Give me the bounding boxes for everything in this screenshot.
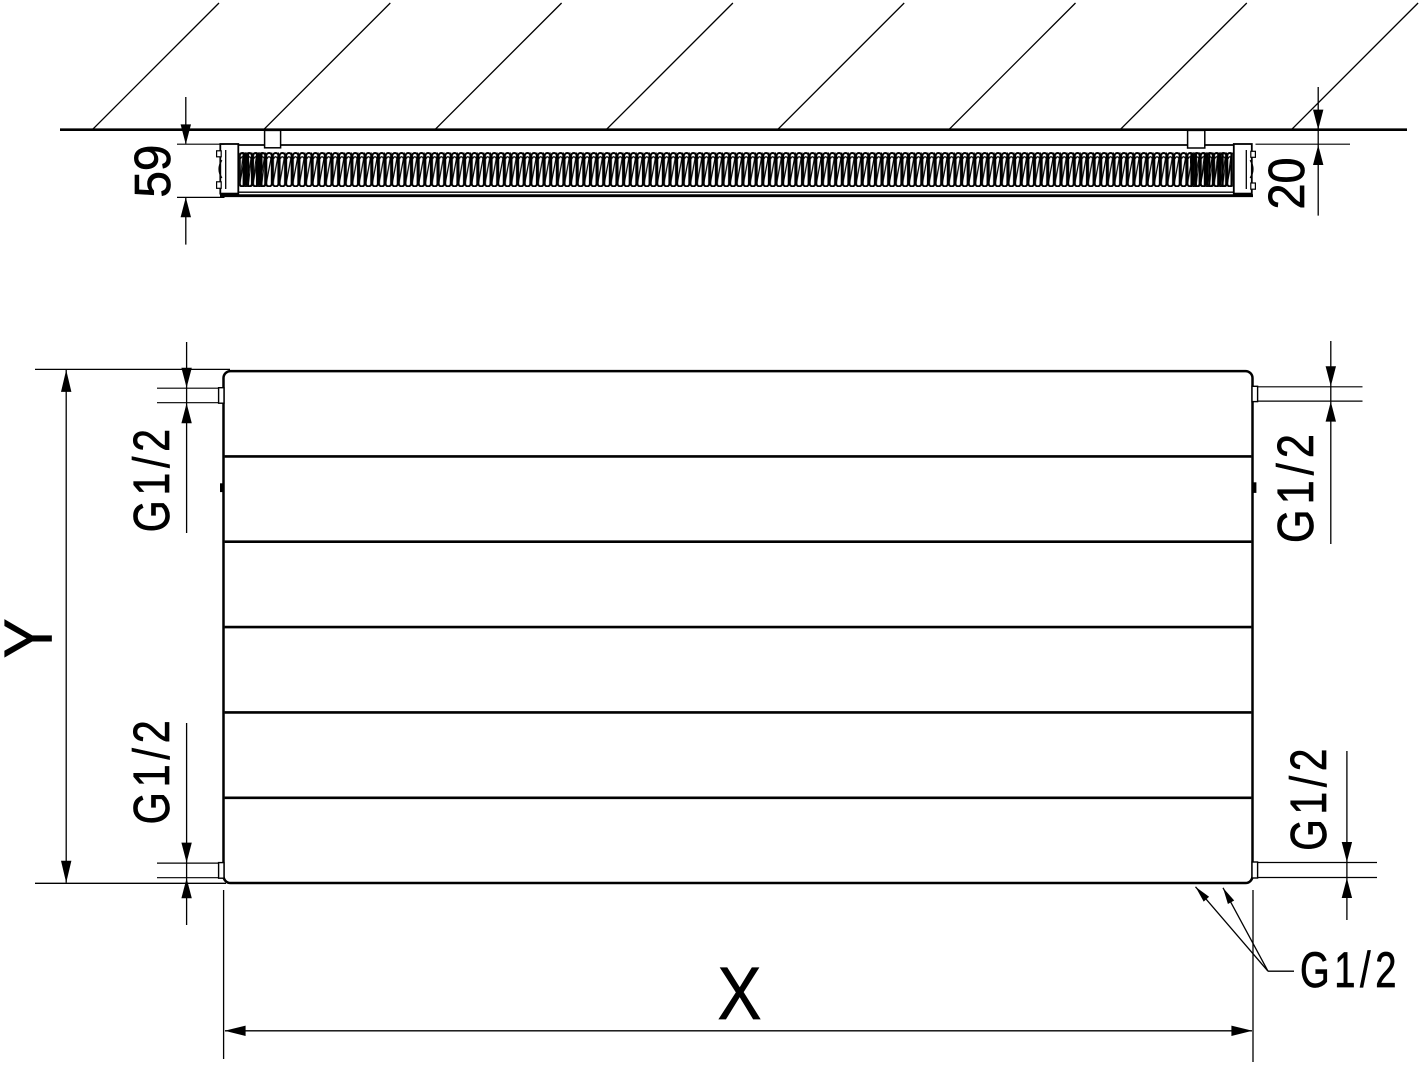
svg-text:G1/2: G1/2 [123,424,180,532]
svg-text:20: 20 [1258,158,1315,210]
svg-text:59: 59 [124,145,181,198]
svg-text:G1/2: G1/2 [1280,744,1337,851]
svg-text:G1/2: G1/2 [1267,429,1324,543]
svg-text:X: X [718,952,762,1035]
svg-text:Y: Y [0,618,66,658]
svg-text:G1/2: G1/2 [1300,942,1401,998]
svg-text:G1/2: G1/2 [123,715,180,824]
